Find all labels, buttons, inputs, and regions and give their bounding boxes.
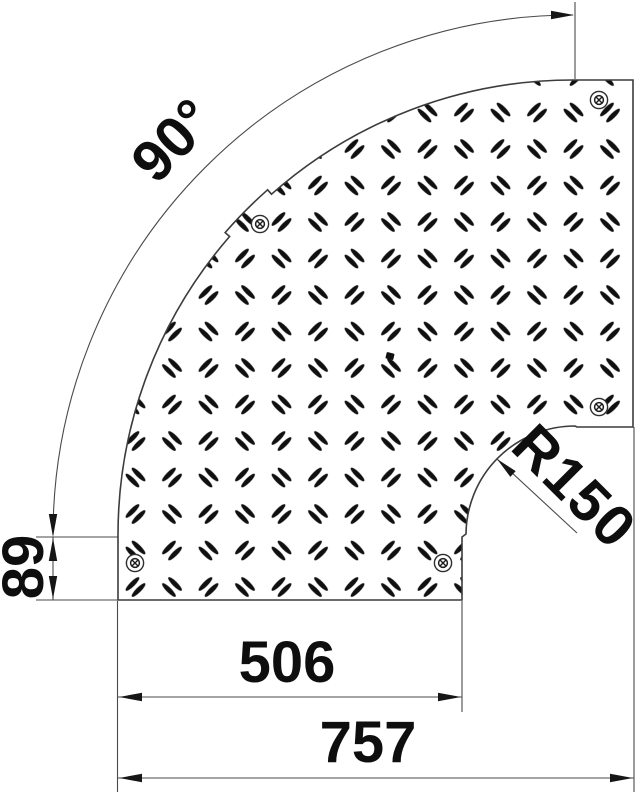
technical-drawing-canvas: 90° R150 89 506 757 <box>0 0 636 794</box>
dimension-arrow-icon <box>551 11 574 19</box>
screw-head-icon <box>590 91 607 108</box>
dimension-width-757 <box>118 774 634 782</box>
dimension-arrow-icon <box>49 514 57 537</box>
dimension-arrow-icon <box>610 774 633 782</box>
screw-head-icon <box>251 215 268 232</box>
dim-label-inner-width: 506 <box>239 634 336 692</box>
dimension-arrow-icon <box>119 693 142 701</box>
dimension-arrow-icon <box>119 774 142 782</box>
dim-label-end-height: 89 <box>0 535 53 600</box>
screw-head-icon <box>434 554 451 571</box>
screw-head-icon <box>126 554 143 571</box>
screw-head-icon <box>590 398 607 415</box>
dim-label-total-width: 757 <box>320 714 417 772</box>
dimension-arrow-icon <box>438 693 461 701</box>
